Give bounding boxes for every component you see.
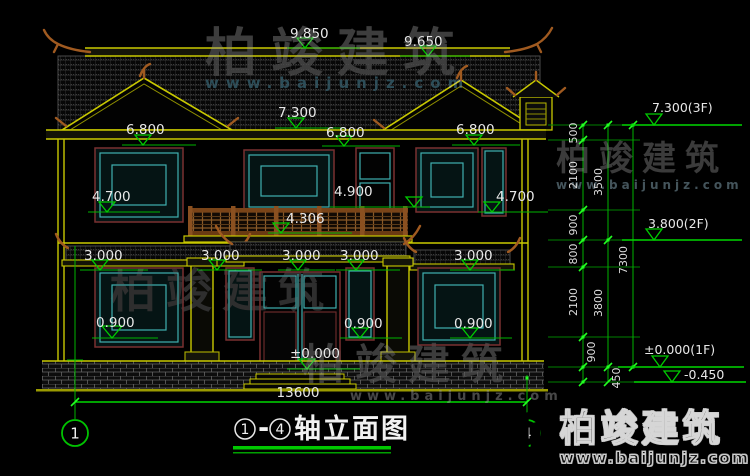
title-underline-thin [233,452,391,454]
level-1f: ±0.000(1F) [644,342,715,357]
dim-sill-2f-right: 4.700 [496,189,535,205]
dim-lintel-2f-left: 6.800 [126,122,165,138]
chain-2100-bot: 2100 [567,288,580,316]
dim-lintel-1f-5: 3.000 [454,248,493,264]
title-axis-from: 1 [241,422,250,438]
chain-800: 800 [567,244,580,265]
ridge-ornament-right [505,28,552,52]
level-3f: 7.300(3F) [652,100,713,115]
title-dash: - [258,413,271,444]
footer-url: www.baijunjz.com [560,449,750,467]
dim-lintel-2f-mid: 6.800 [326,125,365,141]
window-1f-right [418,268,500,345]
cad-elevation-screenshot: 9.850 9.650 7.300 6.800 6.800 6.800 4.70… [0,0,750,476]
dim-sill-1f-left: 0.900 [96,315,135,331]
footer-brand: 柏竣建筑 [560,410,750,447]
chain-450: 450 [610,368,623,389]
chain-900-top: 900 [567,215,580,236]
dim-overall-width: 13600 [277,385,320,401]
roof-ridge [85,48,510,56]
chain-3500: 3500 [592,168,605,196]
title-text: 轴立面图 [294,413,410,445]
chain-900-bot: 900 [585,342,598,363]
chain-7300: 7300 [617,246,630,274]
drawing-title: 1 - 4 轴立面图 [233,413,410,454]
dim-sill-2f-left: 4.700 [92,189,131,205]
dim-sill-1f-right: 0.900 [454,316,493,332]
window-1f-narrow-left [226,268,254,340]
chain-500: 500 [567,123,580,144]
dim-lintel-2f-right: 6.800 [456,122,495,138]
window-2f-right [416,148,478,212]
window-1f-left [95,268,183,347]
ridge-ornament-left [44,30,90,52]
window-2f-narrow [482,148,506,216]
dim-sill-1f-mid: 0.900 [344,316,383,332]
baijun-logo-icon: .logo-blue .swoosh{stroke:#1b74cf}.logo-… [488,403,554,473]
dim-rail-base: 4.306 [286,211,325,227]
dim-floor-1f: ±0.000 [290,346,340,362]
chain-2100-top: 2100 [567,161,580,189]
title-axis-to: 4 [276,422,285,438]
window-2f-center [244,150,334,212]
dim-rail-top: 4.900 [334,184,373,200]
dim-ridge-left: 9.850 [290,26,329,42]
title-underline-thick [233,446,391,450]
dim-lintel-1f-2: 3.000 [201,248,240,264]
baijun-logo-footer: .logo-blue .swoosh{stroke:#1b74cf}.logo-… [488,400,750,476]
dim-lintel-1f-1: 3.000 [84,248,123,264]
dim-lintel-1f-4: 3.000 [340,248,379,264]
axis-number-1: 1 [70,425,80,443]
right-dimension-chains: 500 2100 900 800 2100 900 450 3500 3800 … [548,100,746,389]
dim-eave-2f: 7.300 [278,105,317,121]
level-ground: -0.450 [684,367,724,382]
chain-3800: 3800 [592,289,605,317]
balcony-slab [184,236,412,242]
dim-lintel-1f-3: 3.000 [282,248,321,264]
house-elevation [36,28,565,392]
level-2f: 3.800(2F) [648,216,709,231]
dim-ridge-right: 9.650 [404,34,443,50]
